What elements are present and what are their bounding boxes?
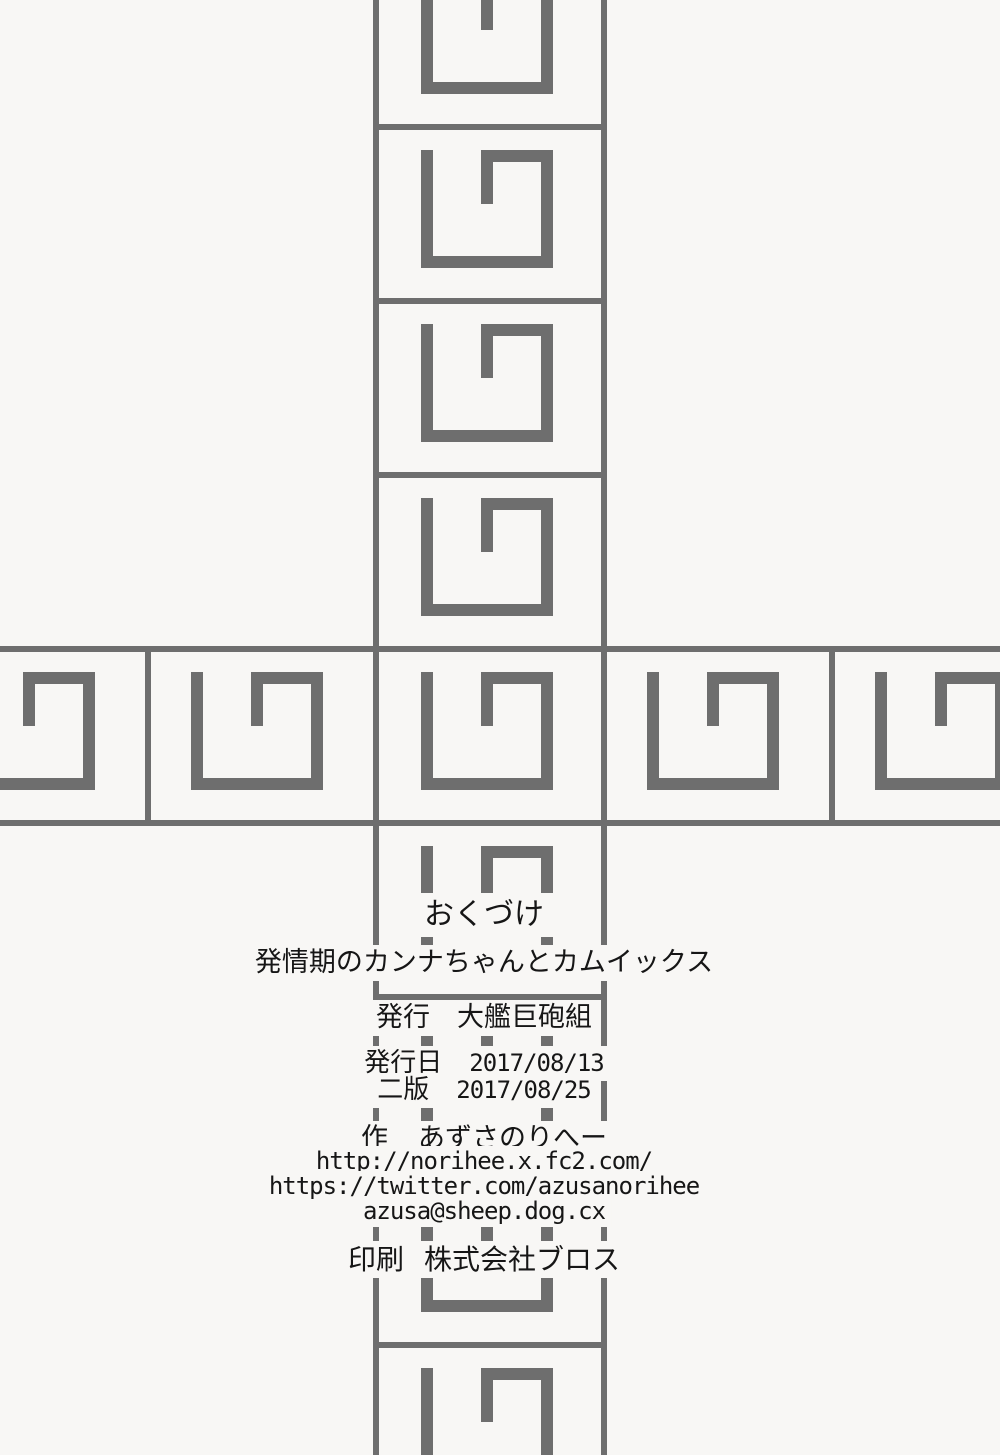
colophon-heading: おくづけ [413,893,555,937]
printer-line: 印刷 株式会社ブロス [339,1241,629,1278]
publisher-name: 大艦巨砲組 [457,1003,592,1033]
printer-label: 印刷 [348,1244,404,1275]
book-title-text: 発情期のカンナちゃんとカムイックス [255,948,713,978]
publisher-label: 発行 [376,1003,430,1033]
colophon-heading-text: おくづけ [424,898,544,932]
colophon-page: おくづけ 発情期のカンナちゃんとカムイックス 発行 大艦巨砲組 発行日 2017… [0,0,1000,1455]
second-edition-line: 二版 2017/08/25 [368,1073,600,1108]
printer-name: 株式会社ブロス [424,1244,620,1275]
edition-date-value: 2017/08/25 [456,1077,591,1104]
email-address: azusa@sheep.dog.cx [356,1196,612,1227]
book-title: 発情期のカンナちゃんとカムイックス [246,945,722,981]
edition-label: 二版 [377,1076,429,1105]
colophon-text-block: おくづけ 発情期のカンナちゃんとカムイックス 発行 大艦巨砲組 発行日 2017… [0,0,1000,1455]
publisher-line: 発行 大艦巨砲組 [367,1000,601,1036]
email-address-text: azusa@sheep.dog.cx [363,1198,605,1225]
